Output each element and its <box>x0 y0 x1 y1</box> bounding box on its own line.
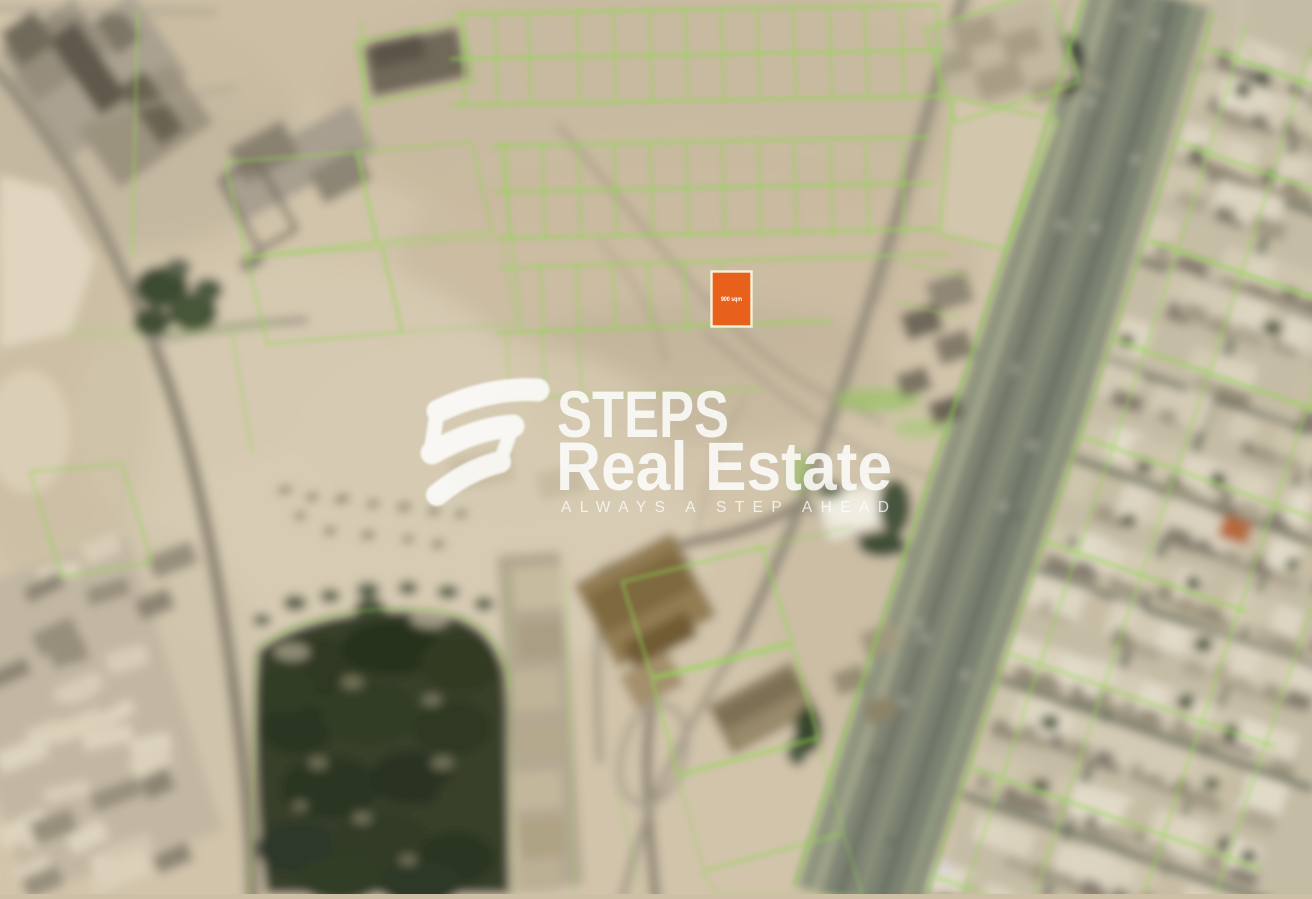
svg-text:Real Estate: Real Estate <box>556 428 892 505</box>
svg-text:900 sqm: 900 sqm <box>721 296 742 303</box>
